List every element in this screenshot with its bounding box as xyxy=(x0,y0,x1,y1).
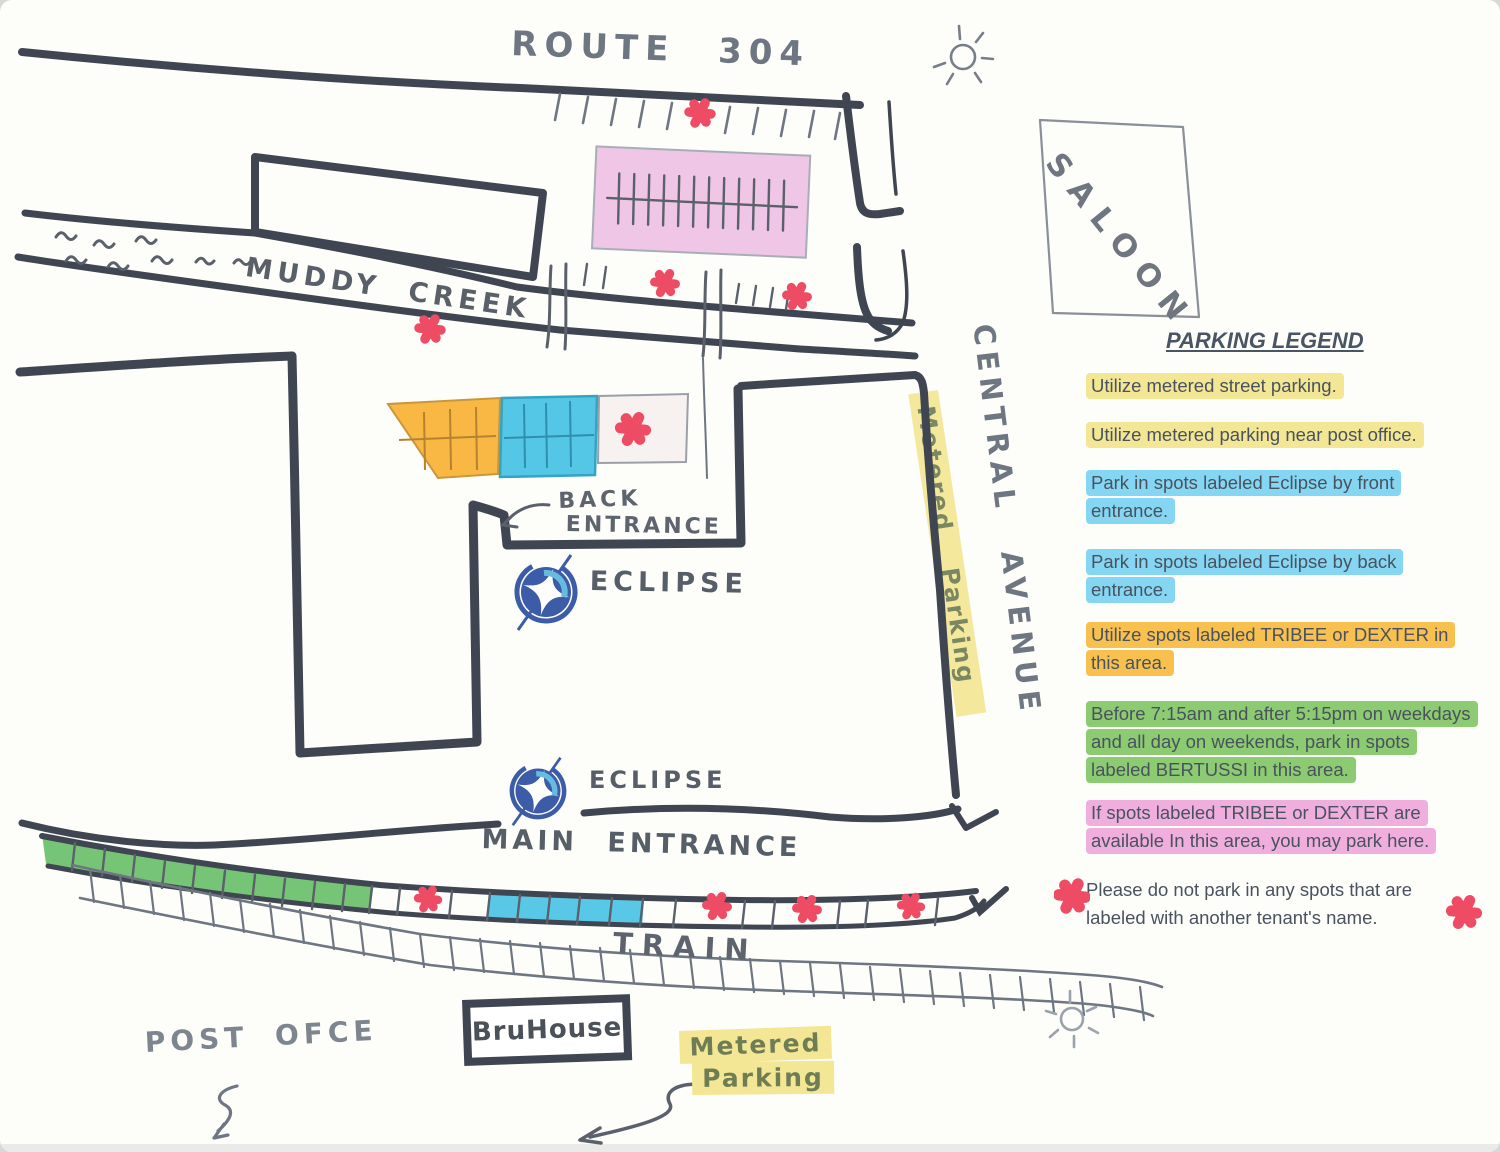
metered-parking-label-line1: Metered xyxy=(679,1026,832,1064)
eclipse-logo-icon xyxy=(502,755,575,828)
legend-item: Utilize metered street parking. xyxy=(1086,372,1486,400)
eclipse-label: ECLIPSE xyxy=(589,566,748,600)
legend-title: PARKING LEGEND xyxy=(1166,328,1492,354)
bridge-icon xyxy=(547,264,566,349)
legend-item: Please do not park in any spots that are… xyxy=(1086,876,1466,932)
eclipse-label: ECLIPSE xyxy=(589,766,727,794)
legend-item: Park in spots labeled Eclipse by front e… xyxy=(1086,469,1436,525)
no-parking-asterisk-icon xyxy=(419,319,441,339)
legend-item: Utilize metered parking near post office… xyxy=(1086,421,1486,449)
legend-item: Utilize spots labeled TRIBEE or DEXTER i… xyxy=(1086,621,1470,677)
legend-item: Park in spots labeled Eclipse by back en… xyxy=(1086,548,1436,604)
bruhouse-building: BruHouse xyxy=(462,994,632,1066)
parking-legend: PARKING LEGEND Utilize metered street pa… xyxy=(1062,328,1492,951)
back-entrance-label-line2: ENTRANCE xyxy=(566,512,722,540)
back-entrance-label-line1: BACK xyxy=(558,486,642,514)
hand-drawn-parking-map: Metered Parking xyxy=(0,0,1500,1152)
no-parking-asterisk-icon xyxy=(620,418,645,441)
no-parking-asterisk-icon xyxy=(707,897,728,916)
no-parking-asterisk-icon xyxy=(418,890,438,908)
eclipse-logo-icon xyxy=(506,552,587,633)
sun-icon xyxy=(1046,991,1098,1047)
no-parking-asterisk-icon xyxy=(655,274,676,293)
post-office-arrow xyxy=(214,1086,237,1138)
no-parking-asterisk-icon xyxy=(901,897,921,915)
cyan-parking-lot xyxy=(500,396,597,477)
no-parking-asterisk-icon xyxy=(797,900,818,919)
bridge-icon xyxy=(703,270,721,478)
legend-item: If spots labeled TRIBEE or DEXTER are av… xyxy=(1086,799,1482,855)
metered-parking-label-line2: Parking xyxy=(692,1061,834,1095)
orange-parking-lot xyxy=(388,398,500,478)
no-parking-asterisk-icon xyxy=(689,103,711,123)
no-parking-asterisk-icon xyxy=(1054,878,1090,914)
pink-parking-lot xyxy=(592,146,810,257)
back-entrance-arrow xyxy=(503,505,549,527)
sun-icon xyxy=(934,26,993,84)
no-parking-asterisk-icon xyxy=(787,287,808,306)
legend-item: Before 7:15am and after 5:15pm on weekda… xyxy=(1086,700,1474,784)
no-parking-asterisk-icon xyxy=(1446,894,1482,930)
